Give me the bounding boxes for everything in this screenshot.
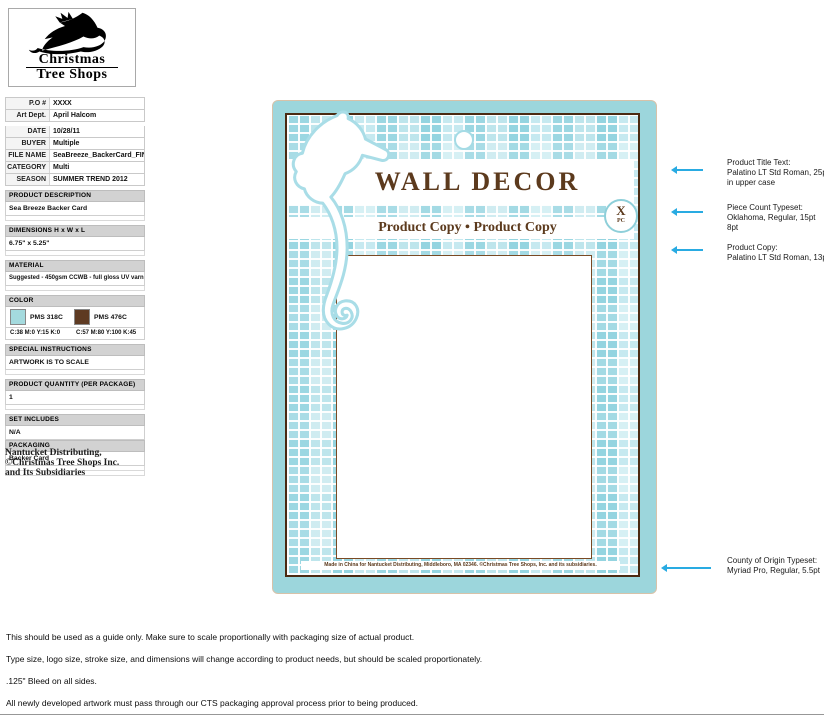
spec-table: P.O #XXXX Art Dept.April Halcom DATE10/2… [5,97,145,476]
special-instructions-value: ARTWORK IS TO SCALE [5,356,145,370]
product-description-value: Sea Breeze Backer Card [5,202,145,216]
pms-476c-swatch [74,309,90,325]
field-label: SEASON [6,174,50,185]
seahorse-icon [282,106,394,338]
annotation-line: in upper case [727,178,824,188]
annotation-line: Myriad Pro, Regular, 5.5pt [727,566,820,576]
brand-name: Christmas Tree Shops [9,53,135,82]
annotation-arrow-product-copy [677,249,703,251]
product-quantity-value: 1 [5,391,145,405]
color-cmyk-row: C:38 M:0 Y:15 K:0 C:57 M:80 Y:100 K:45 [5,328,145,340]
pms-476c-name: PMS 476C [94,314,138,321]
field-label: P.O # [6,98,50,109]
table-row: FILE NAMESeaBreeze_BackerCard_FINAL.ai [5,150,145,162]
material-value: Suggested - 450gsm CCWB - full gloss UV … [5,272,145,286]
pms-318c-name: PMS 318C [30,314,74,321]
dimensions-value: 6.75" x 5.25" [5,237,145,251]
table-row: P.O #XXXX [5,97,145,110]
pms-318c-cmyk: C:38 M:0 Y:15 K:0 [10,328,76,339]
table-row: Art Dept.April Halcom [5,110,145,122]
field-label: Art Dept. [6,110,50,121]
piece-count-x: X [606,204,636,218]
field-value: SeaBreeze_BackerCard_FINAL.ai [50,150,144,161]
table-row: SEASONSUMMER TREND 2012 [5,174,145,186]
annotation-line: County of Origin Typeset: [727,556,820,566]
pms-318c-swatch [10,309,26,325]
annotation-arrow-origin [667,567,711,569]
guideline-note-2: Type size, logo size, stroke size, and d… [6,654,482,664]
color-swatch-row: PMS 318C PMS 476C [5,307,145,328]
section-header-product-quantity: PRODUCT QUANTITY (PER PACKAGE) [5,379,145,391]
guideline-note-4: All newly developed artwork must pass th… [6,698,418,708]
field-value: April Halcom [50,110,144,121]
bottom-divider [0,714,824,715]
brand-name-line1: Christmas [26,53,118,68]
annotation-line: Product Copy: [727,243,824,253]
annotation-line: Piece Count Typeset: [727,203,816,213]
field-label: BUYER [6,138,50,149]
annotation-product-title: Product Title Text: Palatino LT Std Roma… [727,158,824,188]
annotation-country-of-origin: County of Origin Typeset: Myriad Pro, Re… [727,556,820,576]
copyright-line: ©Christmas Tree Shops Inc. [5,458,119,468]
pms-476c-cmyk: C:57 M:80 Y:100 K:45 [76,328,142,339]
copyright-line: Nantucket Distributing, [5,448,119,458]
section-header-set-includes: SET INCLUDES [5,414,145,426]
field-value: XXXX [50,98,144,109]
field-label: FILE NAME [6,150,50,161]
copyright-line: and Its Subsidiaries [5,468,119,478]
field-value: SUMMER TREND 2012 [50,174,144,185]
annotation-product-copy: Product Copy: Palatino LT Std Roman, 13p… [727,243,824,263]
annotation-line: Oklahoma, Regular, 15pt [727,213,816,223]
brand-logo-box: Christmas Tree Shops [8,8,136,87]
sleigh-tree-logo-icon [15,11,129,55]
guideline-note-3: .125" Bleed on all sides. [6,676,97,686]
annotation-piece-count: Piece Count Typeset: Oklahoma, Regular, … [727,203,816,233]
annotation-line: Palatino LT Std Roman, 25pt [727,168,824,178]
piece-count-pc: PC [606,218,636,224]
section-header-product-description: PRODUCT DESCRIPTION [5,190,145,202]
field-label: DATE [6,126,50,137]
annotation-arrow-piece-count [677,211,703,213]
section-header-dimensions: DIMENSIONS H x W x L [5,225,145,237]
brand-name-line2: Tree Shops [9,68,135,82]
annotation-line: Palatino LT Std Roman, 13pt [727,253,824,263]
annotation-line: Product Title Text: [727,158,824,168]
hang-hole [454,130,474,150]
field-label: CATEGORY [6,162,50,173]
table-row: CATEGORYMulti [5,162,145,174]
copyright-block: Nantucket Distributing, ©Christmas Tree … [5,448,119,478]
field-value: 10/28/11 [50,126,144,137]
field-value: Multi [50,162,144,173]
guideline-note-1: This should be used as a guide only. Mak… [6,632,414,642]
country-of-origin-text: Made in China for Nantucket Distributing… [301,561,620,570]
set-includes-value: N/A [5,426,145,440]
table-row: BUYERMultiple [5,138,145,150]
backer-card-mockup: WALL DECOR Product Copy • Product Copy X… [272,100,657,594]
section-header-special-instructions: SPECIAL INSTRUCTIONS [5,344,145,356]
annotation-arrow-title [677,169,703,171]
piece-count-badge: X PC [604,199,638,233]
field-value: Multiple [50,138,144,149]
annotation-line: 8pt [727,223,816,233]
section-header-material: MATERIAL [5,260,145,272]
section-header-color: COLOR [5,295,145,307]
table-row: DATE10/28/11 [5,126,145,138]
